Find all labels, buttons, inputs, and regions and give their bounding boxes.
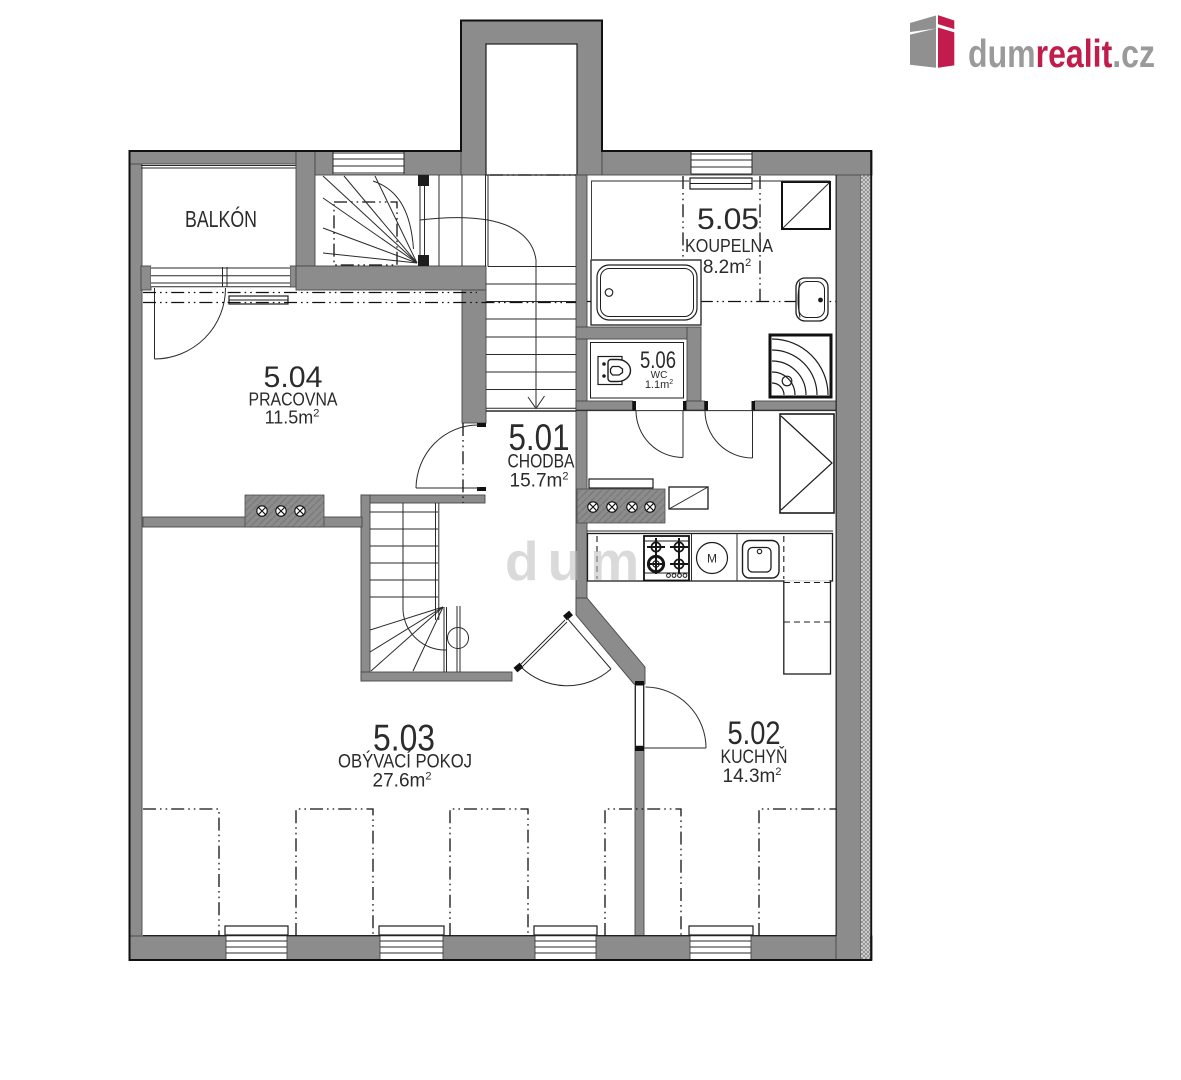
svg-text:8.2m2: 8.2m2 <box>703 257 751 278</box>
svg-text:BALKÓN: BALKÓN <box>185 206 257 232</box>
svg-text:CHODBA: CHODBA <box>508 452 575 473</box>
svg-text:14.3m2: 14.3m2 <box>723 766 782 787</box>
svg-text:KUCHYŇ: KUCHYŇ <box>721 746 788 768</box>
svg-text:dum: dum <box>505 530 648 592</box>
svg-text:dumrealit.cz: dumrealit.cz <box>968 33 1155 76</box>
svg-text:27.6m2: 27.6m2 <box>373 771 432 792</box>
svg-text:5.02: 5.02 <box>728 715 781 751</box>
svg-text:PRACOVNA: PRACOVNA <box>249 390 338 410</box>
svg-text:1.1m2: 1.1m2 <box>645 379 673 391</box>
svg-text:KOUPELNA: KOUPELNA <box>685 236 773 256</box>
svg-text:M: M <box>707 552 717 566</box>
svg-text:5.05: 5.05 <box>697 203 759 236</box>
svg-text:15.7m2: 15.7m2 <box>510 471 569 492</box>
svg-text:OBÝVACÍ POKOJ: OBÝVACÍ POKOJ <box>338 752 472 773</box>
svg-text:11.5m2: 11.5m2 <box>265 408 320 428</box>
